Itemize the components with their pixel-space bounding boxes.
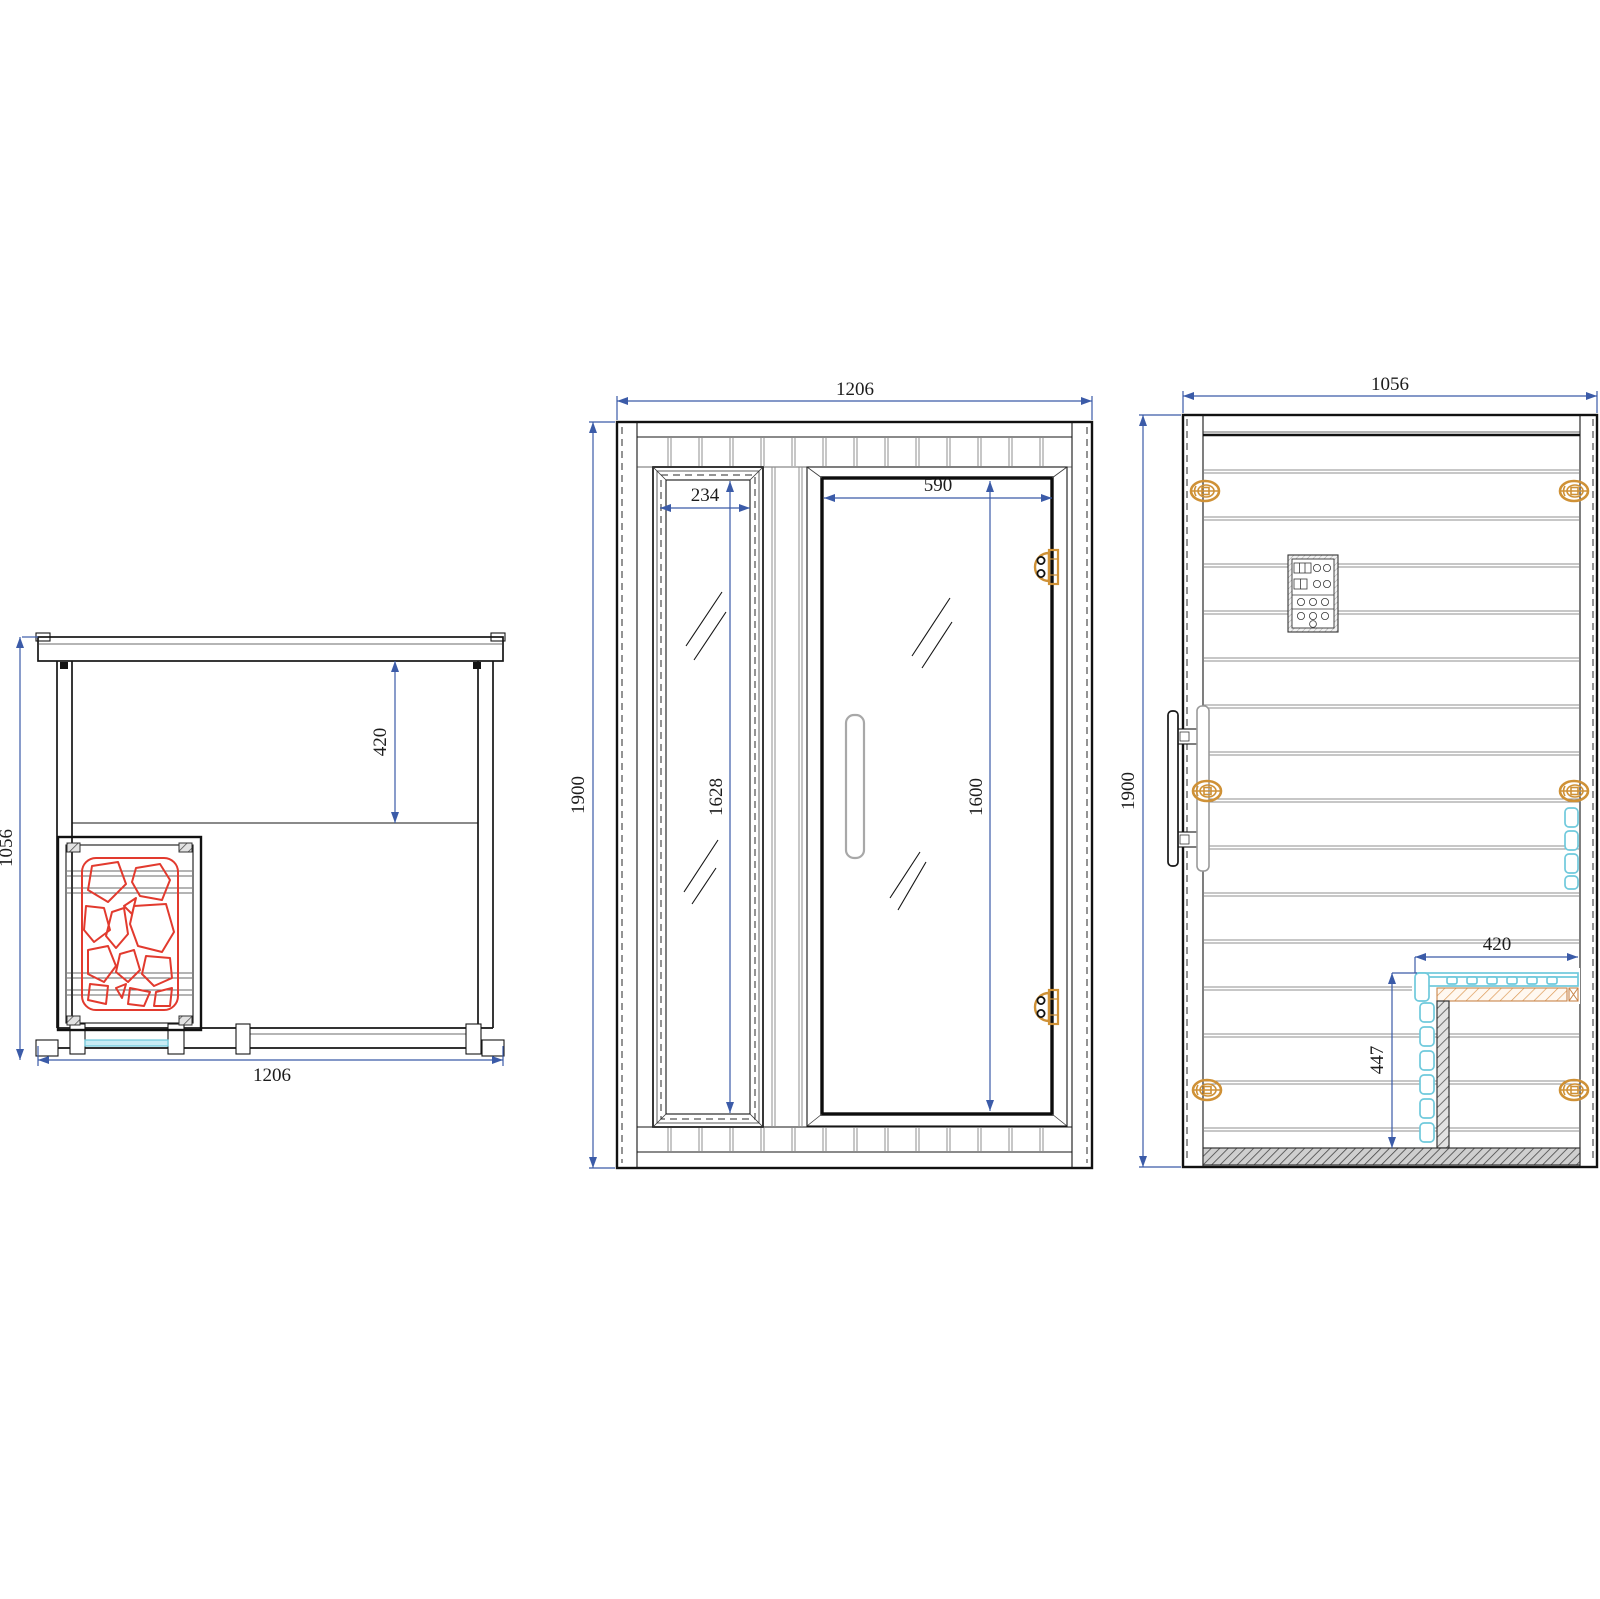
floor-section — [1203, 1148, 1580, 1165]
latch-icon — [1560, 1080, 1588, 1100]
heater-corner-block — [67, 1016, 80, 1025]
door-glass-reflection — [890, 598, 952, 910]
dim-label-door-width: 590 — [924, 475, 953, 496]
dim-label-bench-height: 447 — [1367, 1046, 1388, 1075]
dim-label-front-width: 1206 — [836, 379, 874, 400]
heater-corner-block — [179, 843, 192, 852]
corner-clip — [60, 662, 68, 669]
bench-rail — [1437, 988, 1567, 1001]
dim-label-window-height: 1628 — [706, 778, 727, 816]
bottom-plank-joints — [668, 1128, 1043, 1151]
side-view: 1056 1900 420 447 — [1118, 374, 1597, 1167]
dim-label-side-height: 1900 — [1118, 772, 1139, 810]
plan-window-glass — [85, 1040, 168, 1046]
latch-icon — [1193, 1080, 1221, 1100]
bench-slat-column — [1420, 1003, 1434, 1142]
dim-label-front-height: 1900 — [568, 776, 589, 814]
sauna-three-view-drawing: 1056 1206 420 — [0, 0, 1600, 1599]
door-jamb-post — [466, 1024, 481, 1054]
door-hinge-icon-top — [1035, 550, 1058, 584]
window-glass-reflection — [684, 592, 726, 904]
door-jamb-post — [168, 1024, 184, 1054]
backrest-slats — [1565, 808, 1578, 889]
dim-label-bench-depth: 420 — [1483, 934, 1512, 955]
dim-label-plan-depth: 1056 — [0, 829, 17, 867]
door-jamb-post — [236, 1024, 250, 1054]
plan-view: 1056 1206 420 — [0, 633, 505, 1086]
control-panel — [1288, 555, 1338, 632]
latch-icon — [1191, 481, 1219, 501]
dim-label-door-height: 1600 — [966, 778, 987, 816]
top-plank-joints — [668, 438, 1043, 466]
side-outer-frame — [1183, 415, 1597, 1167]
bench-leg — [1437, 1001, 1449, 1148]
dim-label-side-depth: 1056 — [1371, 374, 1409, 395]
dim-label-plan-width: 1206 — [253, 1065, 291, 1086]
latch-icon — [1560, 781, 1588, 801]
front-view: 1206 1900 234 590 1628 1600 — [568, 379, 1092, 1168]
plan-base-plate — [482, 1040, 504, 1056]
heater-corner-block — [179, 1016, 192, 1025]
latch-icon — [1560, 481, 1588, 501]
corner-clip — [473, 662, 481, 669]
heater-stones — [82, 858, 178, 1010]
heater-corner-block — [67, 843, 80, 852]
mullion-joints — [772, 467, 802, 1127]
door-hinge-icon-bottom — [1035, 990, 1058, 1024]
door-jamb-post — [70, 1024, 85, 1054]
door-handle-side — [1168, 706, 1209, 871]
heater-top-view — [58, 837, 201, 1030]
front-dimensions: 1206 1900 234 590 1628 1600 — [568, 379, 1092, 1168]
technical-drawing-canvas: 1056 1206 420 — [0, 0, 1600, 1599]
door-handle-front — [846, 715, 864, 858]
dim-label-plan-bench-depth: 420 — [370, 728, 391, 757]
plan-base-plate — [36, 1040, 58, 1056]
bench — [1412, 808, 1580, 1148]
glass-door — [807, 467, 1067, 1126]
plan-back-wall — [38, 637, 503, 661]
side-dimensions: 1056 1900 420 447 — [1118, 374, 1597, 1167]
dim-label-window-width: 234 — [691, 485, 720, 506]
